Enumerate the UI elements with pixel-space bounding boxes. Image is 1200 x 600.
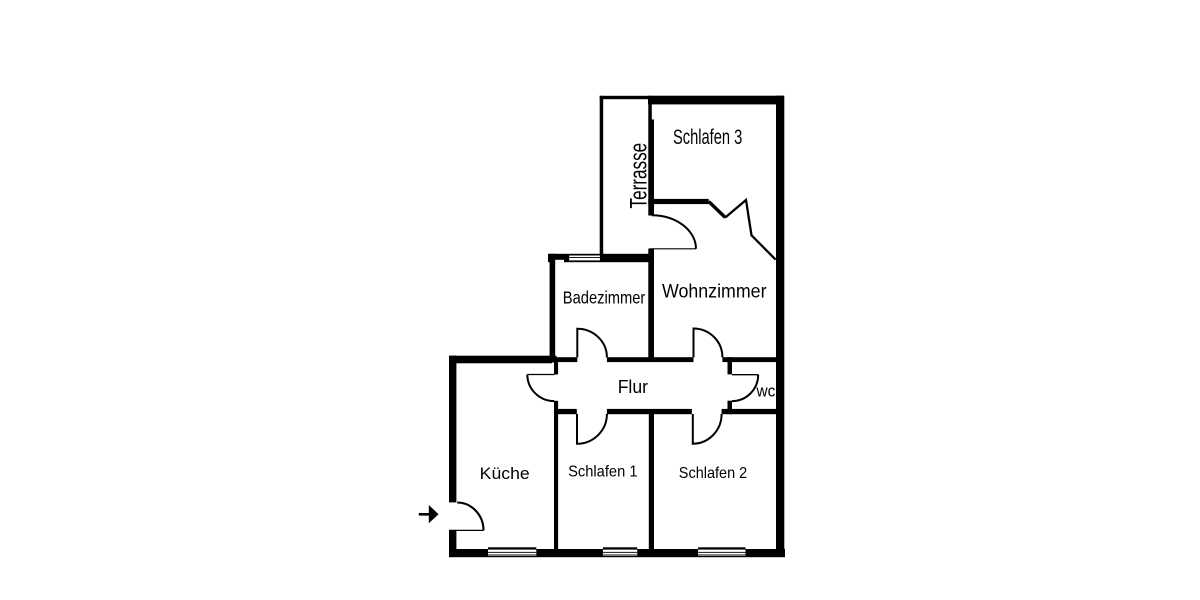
svg-text:Schlafen 2: Schlafen 2 bbox=[679, 465, 747, 482]
svg-text:Badezimmer: Badezimmer bbox=[563, 287, 646, 307]
svg-text:Flur: Flur bbox=[618, 376, 648, 397]
svg-text:Schlafen 3: Schlafen 3 bbox=[673, 126, 742, 149]
svg-text:wc: wc bbox=[756, 382, 776, 400]
svg-text:Wohnzimmer: Wohnzimmer bbox=[662, 280, 767, 302]
svg-text:Küche: Küche bbox=[480, 464, 530, 483]
svg-text:Terrasse: Terrasse bbox=[626, 143, 653, 209]
svg-text:Schlafen 1: Schlafen 1 bbox=[568, 463, 637, 480]
